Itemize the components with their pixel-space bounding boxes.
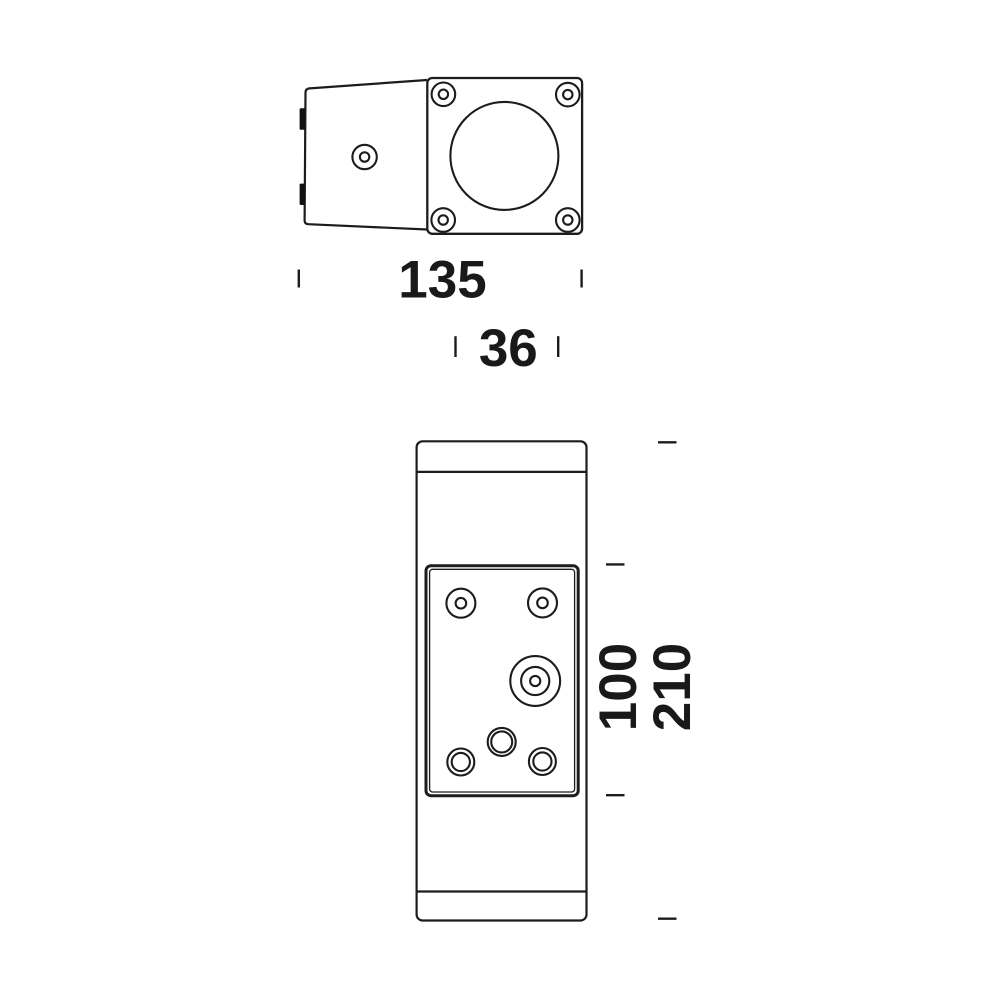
svg-text:36: 36: [479, 319, 538, 378]
svg-text:210: 210: [643, 643, 702, 731]
svg-text:135: 135: [398, 251, 486, 310]
svg-text:100: 100: [589, 643, 648, 731]
